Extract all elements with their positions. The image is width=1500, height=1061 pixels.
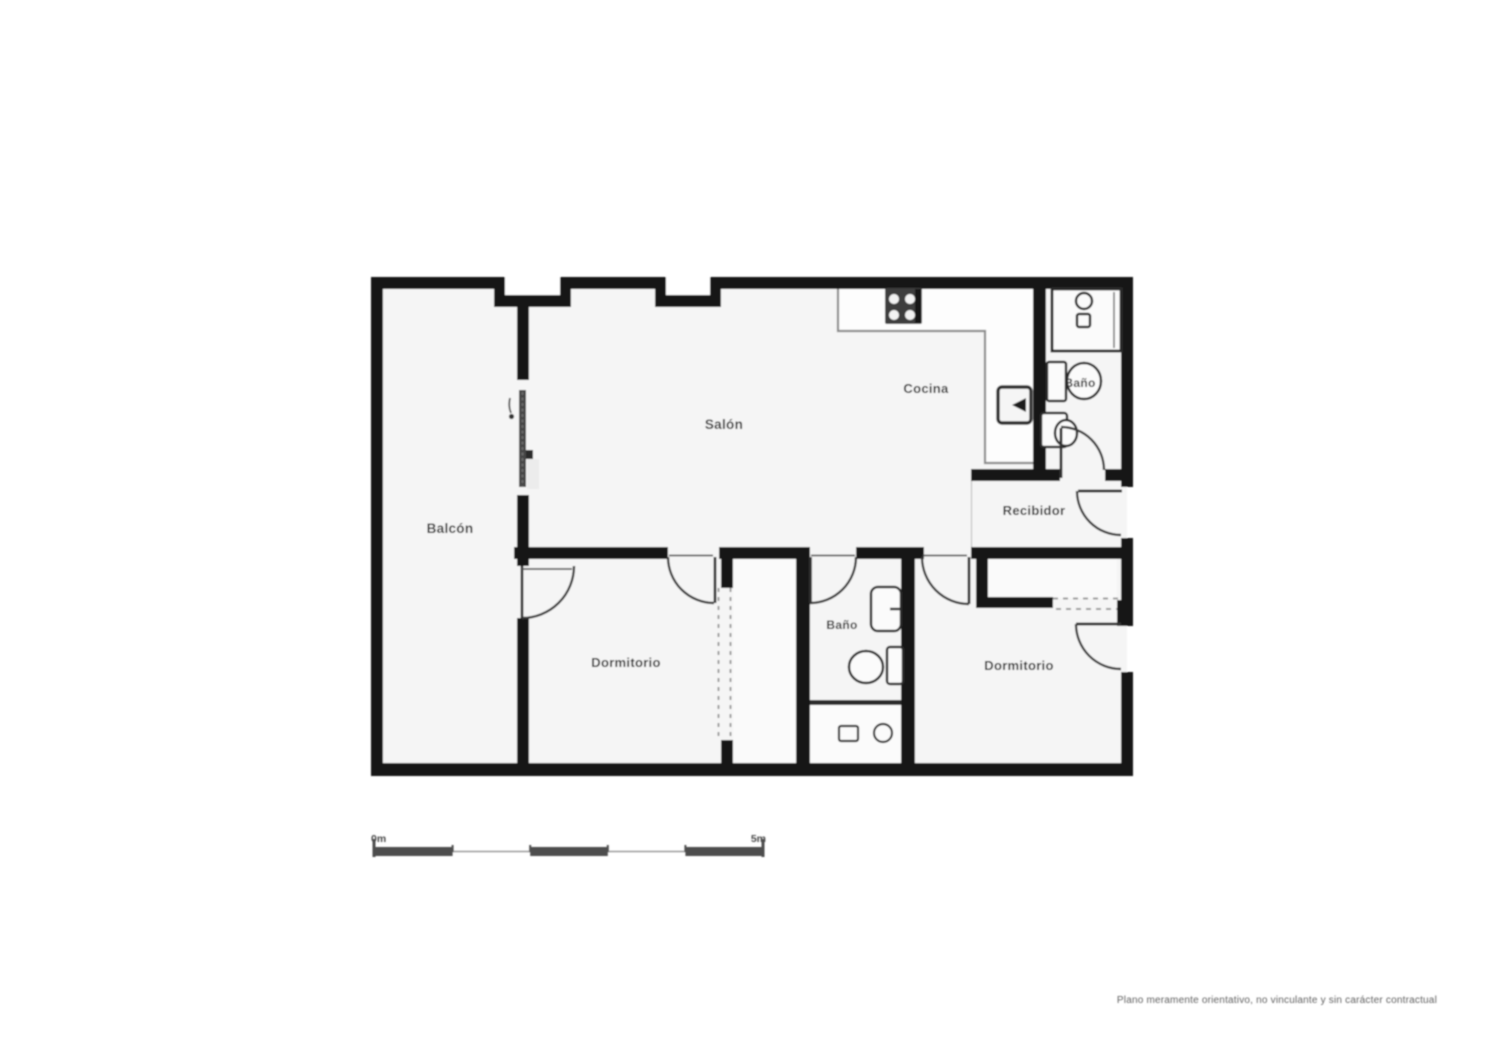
svg-text:5m: 5m: [751, 833, 766, 845]
svg-text:Balcón: Balcón: [427, 521, 474, 536]
svg-text:0m: 0m: [371, 833, 386, 845]
svg-text:Baño: Baño: [1064, 376, 1095, 390]
svg-text:Dormitorio: Dormitorio: [591, 655, 660, 670]
svg-text:Recibidor: Recibidor: [1003, 503, 1066, 518]
svg-text:Baño: Baño: [826, 618, 857, 632]
svg-text:Salón: Salón: [705, 417, 743, 432]
svg-text:Plano meramente orientativo, n: Plano meramente orientativo, no vinculan…: [1117, 995, 1437, 1006]
svg-text:Cocina: Cocina: [903, 381, 949, 396]
svg-text:Dormitorio: Dormitorio: [984, 658, 1053, 673]
